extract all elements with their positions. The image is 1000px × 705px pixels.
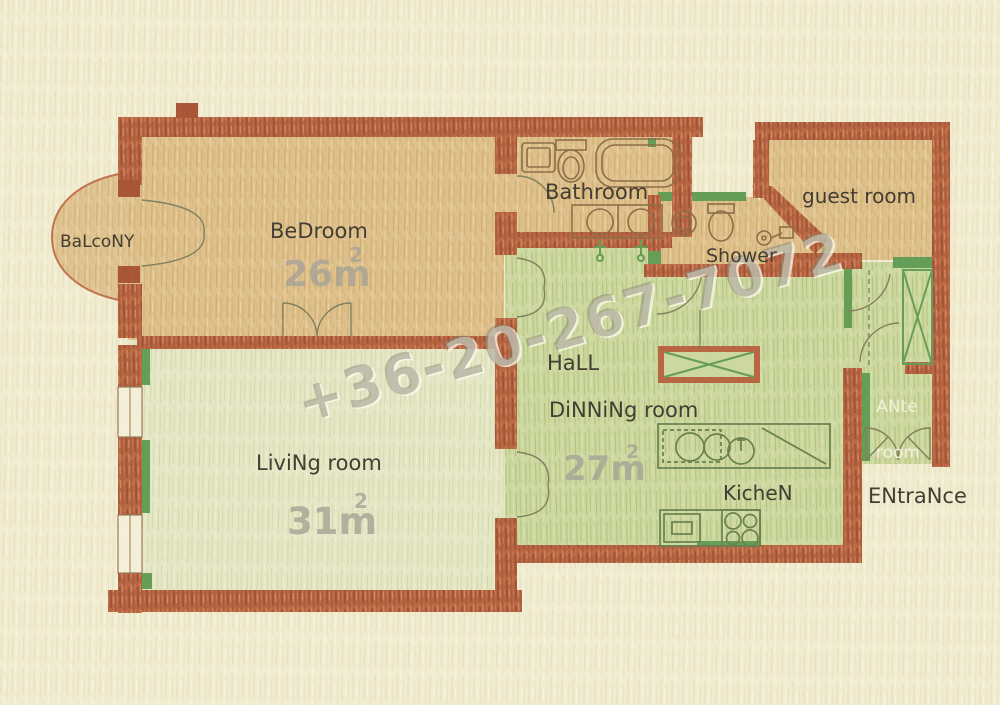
floor-plan-canvas: +36-20-267-7072 +36-20-267-7072 BaLcoNY … <box>0 0 1000 705</box>
floor-plan-drawing: +36-20-267-7072 +36-20-267-7072 BaLcoNY … <box>0 0 1000 705</box>
paper-grain-overlay <box>0 0 1000 705</box>
